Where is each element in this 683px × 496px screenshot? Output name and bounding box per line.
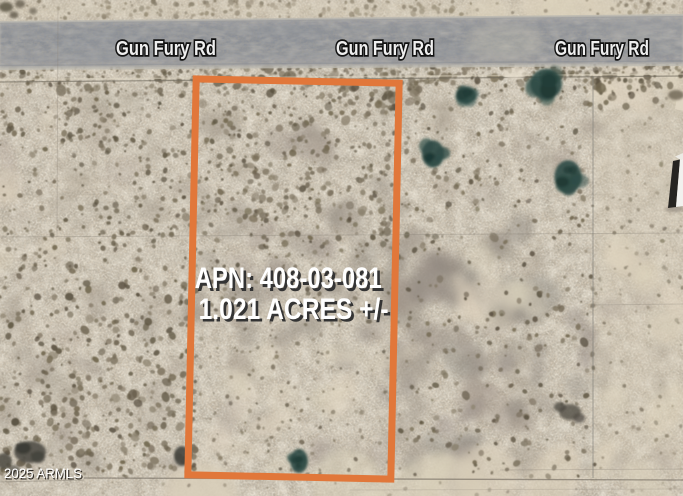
svg-text:Gun Fury Rd: Gun Fury Rd (555, 38, 649, 60)
svg-text:1.021 ACRES +/-: 1.021 ACRES +/- (199, 293, 389, 326)
svg-text:Gun Fury Rd: Gun Fury Rd (116, 38, 216, 60)
svg-text:Gun Fury Rd: Gun Fury Rd (336, 38, 434, 60)
svg-text:2025 ARMLS: 2025 ARMLS (4, 466, 82, 481)
svg-text:APN: 408-03-081: APN: 408-03-081 (195, 262, 382, 295)
